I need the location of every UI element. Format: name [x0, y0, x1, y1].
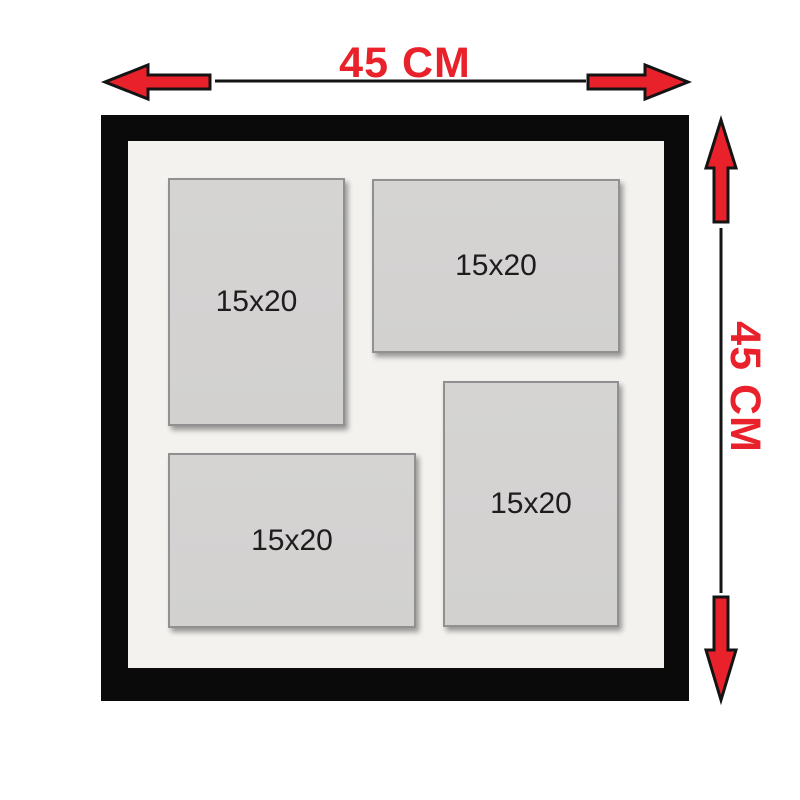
photo-opening-top-left: 15x20: [168, 178, 345, 426]
arrow-left-icon: [105, 65, 210, 99]
photo-opening-bottom-left: 15x20: [168, 453, 416, 628]
arrow-up-icon: [706, 120, 736, 222]
arrow-right-icon: [588, 65, 688, 99]
width-dimension-label: 45 CM: [235, 42, 575, 85]
product-image: 45 CM 45 CM 15x20 15x20 15x20 15x20: [0, 0, 800, 800]
opening-size-label: 15x20: [455, 251, 537, 281]
frame-mat: 15x20 15x20 15x20 15x20: [128, 141, 664, 668]
arrow-down-icon: [706, 597, 736, 700]
photo-opening-top-right: 15x20: [372, 179, 620, 353]
photo-frame: 15x20 15x20 15x20 15x20: [101, 115, 689, 701]
opening-size-label: 15x20: [251, 526, 333, 556]
photo-opening-bottom-right: 15x20: [443, 381, 619, 627]
height-dimension-label: 45 CM: [722, 317, 766, 457]
opening-size-label: 15x20: [216, 287, 298, 317]
opening-size-label: 15x20: [490, 489, 572, 519]
